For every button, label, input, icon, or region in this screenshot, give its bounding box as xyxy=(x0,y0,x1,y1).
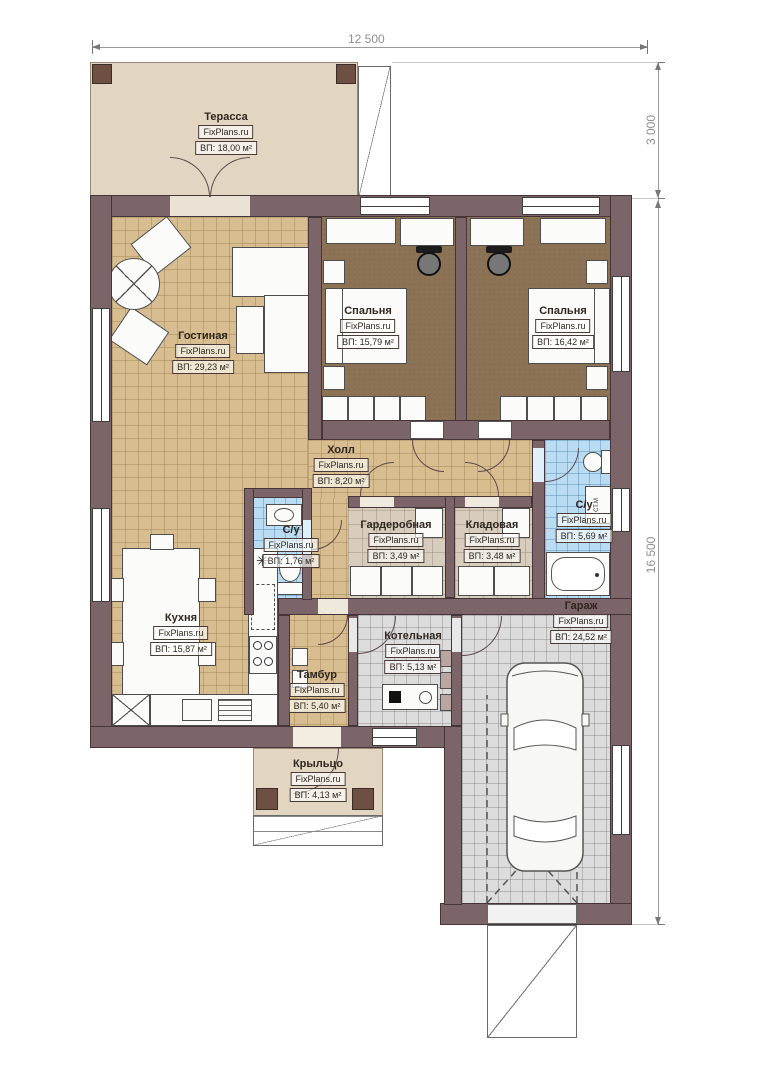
floor-plan: 12 500 3 000 16 500 xyxy=(0,0,763,1080)
closet-cell xyxy=(381,566,412,596)
window xyxy=(612,276,630,372)
door-gap xyxy=(303,520,311,554)
wall-wardrobe-divider xyxy=(445,496,455,598)
door-gap xyxy=(533,448,544,482)
shoe-cabinet xyxy=(292,648,308,666)
nightstand xyxy=(323,260,345,284)
ext-line xyxy=(392,62,658,63)
boiler-dial xyxy=(419,691,432,704)
ext-line xyxy=(632,198,658,199)
terrace-ramp xyxy=(358,66,391,197)
microwave xyxy=(182,699,212,721)
garage-gate-gap xyxy=(487,904,577,924)
wall-bedrooms-south xyxy=(322,420,610,440)
arrow-mid-up-icon xyxy=(655,190,661,198)
wall-left xyxy=(90,195,112,748)
closet-cell xyxy=(412,566,443,596)
dining-chair xyxy=(150,534,174,550)
porch-steps xyxy=(253,815,383,846)
dimension-terrace-depth-label: 3 000 xyxy=(644,115,658,145)
bathtub-drain xyxy=(595,573,599,577)
stove xyxy=(249,636,277,674)
wall-garage-west xyxy=(444,726,462,905)
sink-bowl xyxy=(274,508,294,522)
car xyxy=(500,658,590,876)
arrow-left-icon xyxy=(92,44,100,50)
burner-icon xyxy=(264,641,273,650)
shoe-cabinet xyxy=(292,670,308,688)
closet-cell xyxy=(494,566,530,596)
dresser xyxy=(540,218,606,244)
wall-bedroom-divider xyxy=(455,217,467,440)
closet-cell xyxy=(350,566,381,596)
door-gap xyxy=(318,599,348,614)
burner-icon xyxy=(253,641,262,650)
wall-tambour-west xyxy=(278,615,290,726)
closet-cell xyxy=(502,508,530,538)
arrow-up-icon xyxy=(655,62,661,70)
sofa-section xyxy=(264,295,310,373)
burner-icon xyxy=(253,657,262,666)
wardrobe-cell xyxy=(400,396,426,422)
nightstand xyxy=(586,366,608,390)
washing-machine-label: СТ.М xyxy=(594,498,600,512)
bed xyxy=(325,288,407,364)
door-gap xyxy=(452,618,461,652)
boiler-switch xyxy=(389,691,401,703)
window xyxy=(612,745,630,835)
appliance xyxy=(218,699,252,721)
nightstand xyxy=(586,260,608,284)
burner-icon xyxy=(264,657,273,666)
dimension-main-depth-label: 16 500 xyxy=(644,537,658,574)
kitchen-sink-icon: ✳ xyxy=(256,554,269,569)
wardrobe-cell xyxy=(527,396,554,422)
coffee-table xyxy=(236,306,264,354)
nightstand xyxy=(323,366,345,390)
toilet-bowl xyxy=(583,452,603,472)
bathtub xyxy=(546,552,610,596)
dimension-width-line xyxy=(92,47,648,48)
wardrobe-cell xyxy=(581,396,608,422)
dim-tick xyxy=(647,40,648,54)
window xyxy=(92,508,110,602)
bed xyxy=(528,288,610,364)
fridge xyxy=(251,584,275,630)
desk xyxy=(470,218,524,246)
corner-sink-unit xyxy=(112,694,150,726)
office-chair-icon xyxy=(487,252,511,276)
porch-column xyxy=(352,788,374,810)
door-gap xyxy=(410,421,444,439)
door-gap xyxy=(360,497,394,507)
arrow-mid-dn-icon xyxy=(655,200,661,208)
window xyxy=(522,197,600,215)
garage-apron xyxy=(487,925,577,1038)
sink xyxy=(266,504,302,526)
dim-tick xyxy=(92,40,93,54)
wall-living-bedroom xyxy=(308,217,322,440)
dresser xyxy=(326,218,396,244)
wardrobe-cell xyxy=(554,396,581,422)
toilet-tank xyxy=(277,582,303,595)
ext-line xyxy=(632,924,658,925)
door-gap xyxy=(465,497,499,507)
kitchen-cabinet-row xyxy=(150,694,278,726)
door-gap xyxy=(349,618,357,652)
wardrobe-cell xyxy=(348,396,374,422)
window xyxy=(372,728,417,746)
wall-wc-left xyxy=(244,488,254,615)
terrace-column xyxy=(336,64,356,84)
door-gap xyxy=(478,421,512,439)
boiler-unit xyxy=(382,684,438,710)
dining-chair xyxy=(198,578,216,602)
window xyxy=(92,308,110,422)
coffee-round-table xyxy=(108,258,160,310)
sofa-section xyxy=(232,247,310,297)
dining-table xyxy=(122,548,200,700)
desk xyxy=(400,218,454,246)
window xyxy=(612,488,630,532)
dimension-width-label: 12 500 xyxy=(348,32,385,46)
toilet-bowl xyxy=(279,554,301,582)
closet-cell xyxy=(415,508,443,538)
window xyxy=(360,197,430,215)
washing-machine: СТ.М xyxy=(585,486,611,524)
door-gap xyxy=(293,727,341,747)
dining-chair xyxy=(198,642,216,666)
wardrobe-cell xyxy=(374,396,400,422)
door-gap xyxy=(170,196,250,216)
office-chair-icon xyxy=(417,252,441,276)
closet-cell xyxy=(458,566,494,596)
porch-column xyxy=(256,788,278,810)
wardrobe-cell xyxy=(322,396,348,422)
wardrobe-cell xyxy=(500,396,527,422)
terrace-column xyxy=(92,64,112,84)
